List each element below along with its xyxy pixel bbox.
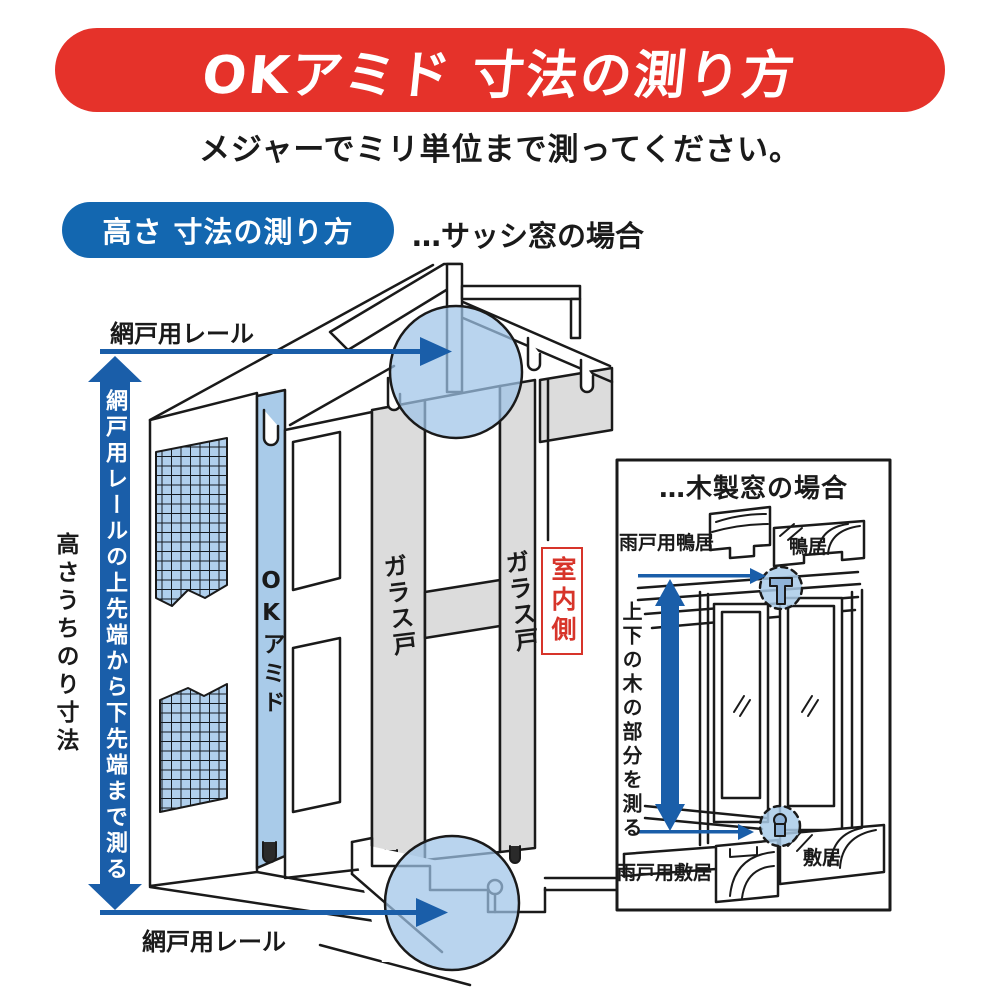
bottom-rail-highlight-circle (385, 836, 519, 970)
rail-label-bottom: 網戸用レール (142, 922, 286, 957)
measuring-guide-page: OKアミド 寸法の測り方 メジャーでミリ単位まで測ってください。 高さ 寸法の測… (0, 0, 1000, 1000)
head-t-flange (462, 286, 580, 299)
ok-amido-label: OKアミド (252, 528, 288, 758)
hanger-hook-far-top (581, 360, 593, 392)
screen-mesh-lower (160, 684, 227, 812)
height-arrow-up-head (88, 356, 142, 382)
indoor-side-box: 室内側 (541, 547, 583, 655)
far-door-top-rail (540, 368, 612, 442)
lintel-pointer-line (638, 574, 750, 578)
hook-strip-bottom (263, 842, 276, 863)
title-banner: OKアミド 寸法の測り方 (55, 28, 945, 112)
hook-door2-bottom (510, 846, 520, 863)
wood-sash-1-glass (722, 612, 760, 798)
top-rail-highlight-circle (390, 306, 522, 438)
wood-arrow-shaft (661, 605, 679, 805)
head-flange-end (571, 299, 580, 338)
subtitle: メジャーでミリ単位まで測ってください。 (0, 124, 1000, 169)
shutter-sill-label: 雨戸用敷居 (617, 858, 712, 885)
lintel-label: 鴨居 (789, 532, 827, 559)
hanger-hook-door2-top (528, 338, 540, 370)
rail-label-top: 網戸用レール (110, 314, 254, 349)
indoor-side-label: 室内側 (544, 556, 580, 646)
sill-pointer-line (638, 830, 738, 834)
wood-measure-note: 上下の木の部分を測る (618, 596, 646, 846)
sill-ridge-stem (775, 824, 785, 836)
shutter-lintel-label: 雨戸用鴨居 (619, 528, 714, 555)
page-title: OKアミド 寸法の測り方 (199, 33, 800, 108)
height-section-badge: 高さ 寸法の測り方 (62, 202, 394, 258)
height-section-badge-label: 高さ 寸法の測り方 (102, 209, 353, 251)
wood-sash-2-glass (788, 606, 834, 806)
sash-case-note: …サッシ窓の場合 (412, 213, 644, 255)
top-rail-measure-line (100, 349, 422, 354)
door-pane-lower (293, 638, 340, 812)
sill-label: 敷居 (803, 843, 841, 870)
height-arrow-down-head (88, 884, 142, 910)
height-measure-note: 網戸用レールの上先端から下先端まで測る (100, 390, 130, 882)
opening-height-label: 高さうちのり寸法 (48, 524, 82, 764)
shutter-sill-block (716, 840, 778, 902)
door-pane-upper (293, 432, 340, 590)
wood-panel-title: …木製窓の場合 (617, 468, 890, 505)
screen-mesh-upper (156, 438, 227, 606)
bottom-rail-measure-line (100, 910, 418, 915)
